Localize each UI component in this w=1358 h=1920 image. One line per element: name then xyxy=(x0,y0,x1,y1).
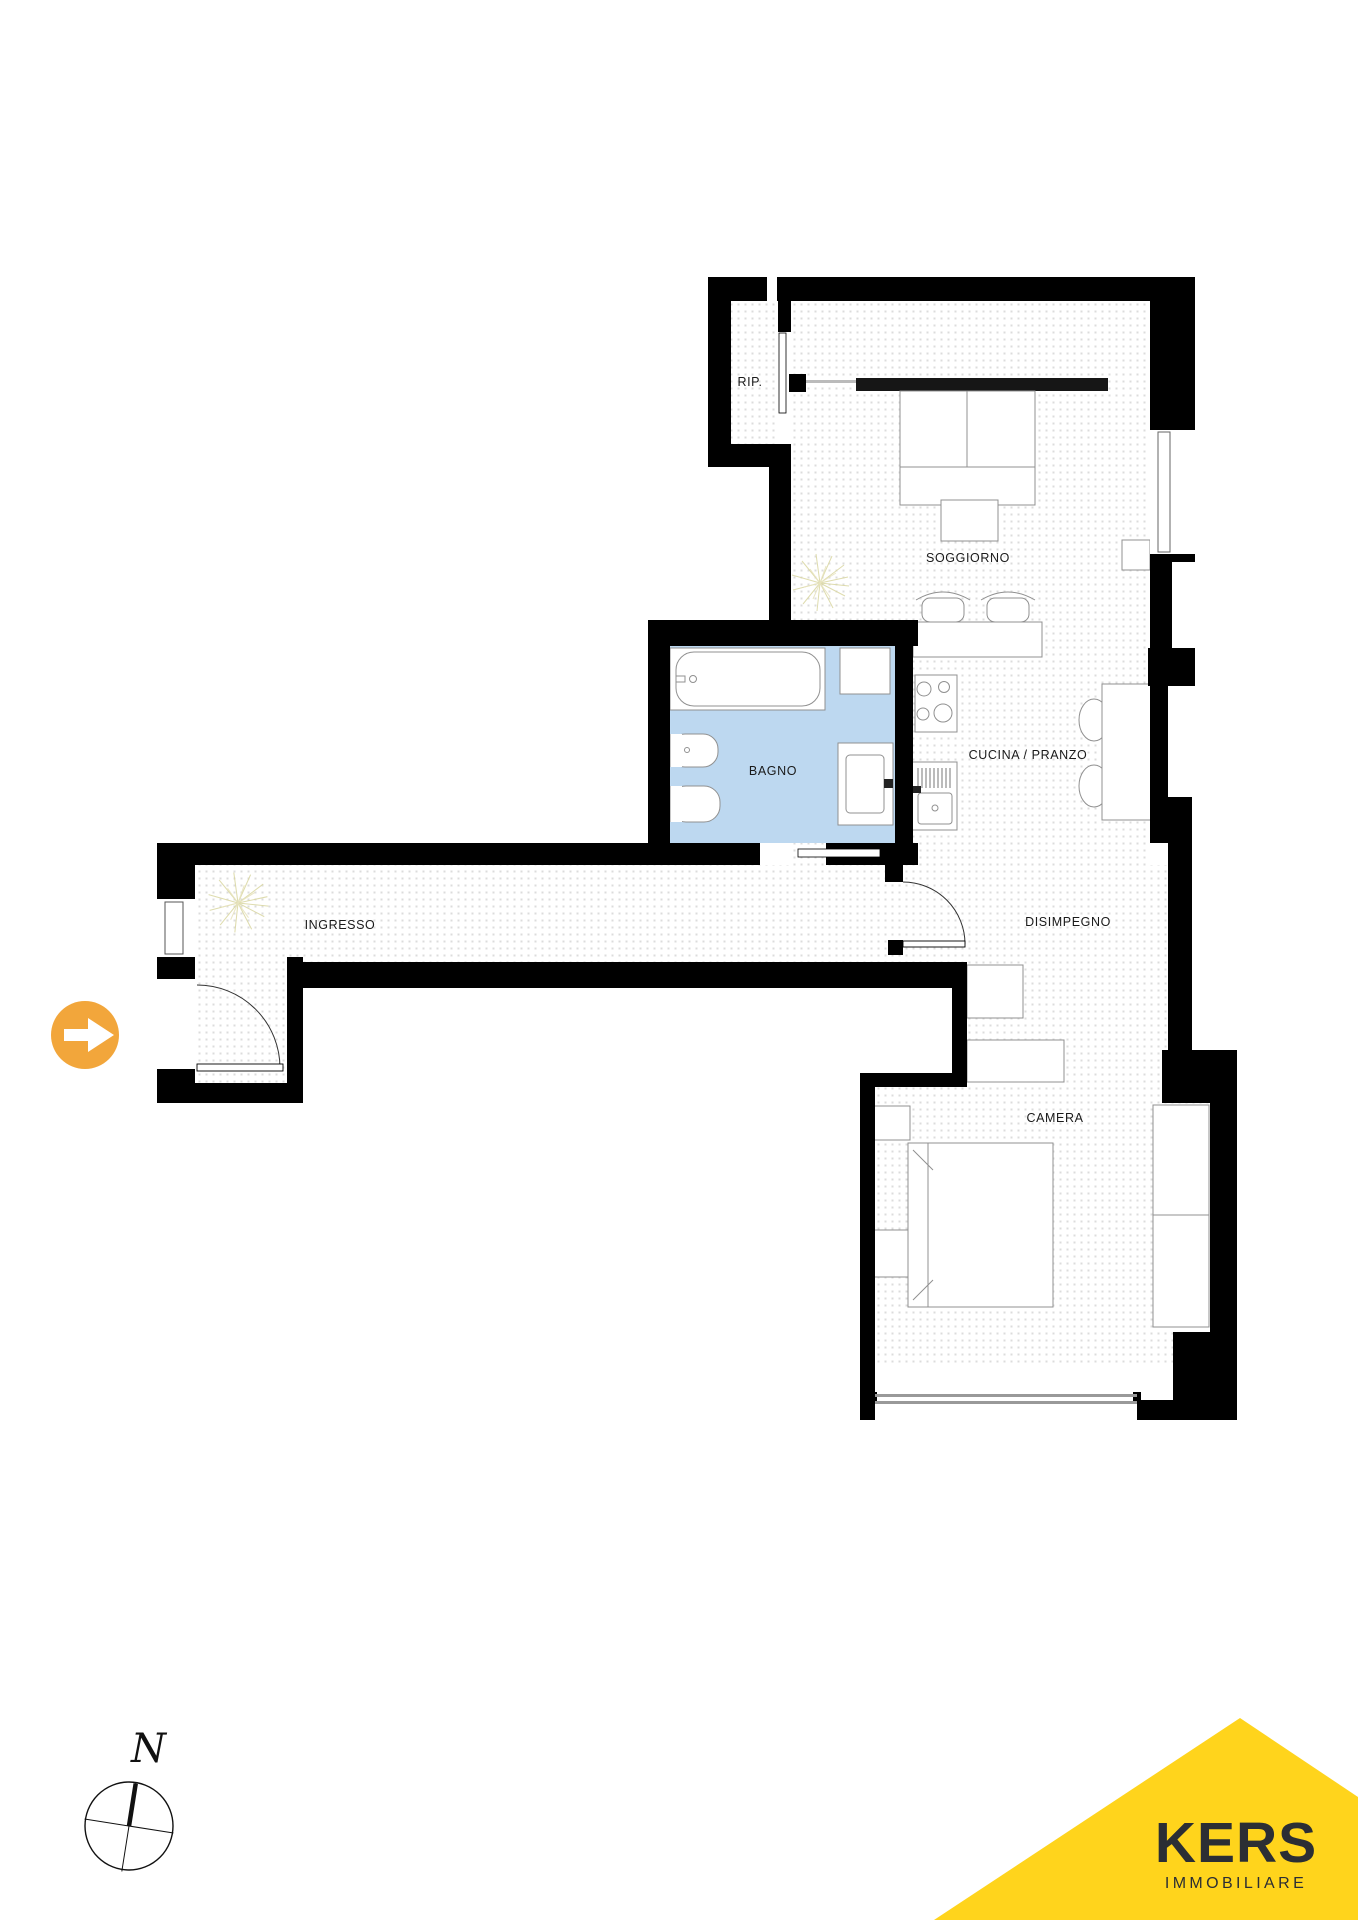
wall-bagno-top xyxy=(648,620,918,646)
wall-camera-top xyxy=(860,1073,967,1087)
window-jamb xyxy=(1150,422,1195,430)
wall-top xyxy=(708,277,1195,301)
logo-name: KERS xyxy=(1155,1811,1317,1875)
sink-faucet xyxy=(913,786,921,793)
wall-doorstop xyxy=(789,374,806,392)
wall-door-post xyxy=(885,865,903,882)
dining-table xyxy=(1102,684,1152,820)
wall-door-jamb xyxy=(888,940,903,955)
floor-plan-page: RIP. SOGGIORNO BAGNO CUCINA / PRANZO ING… xyxy=(0,0,1358,1920)
label-bagno: BAGNO xyxy=(749,764,797,778)
wall-camera-bottom xyxy=(1137,1400,1213,1420)
kitchen-sink xyxy=(912,762,957,830)
compass: N xyxy=(77,1726,180,1878)
sofa-back-console xyxy=(856,378,1108,391)
window-camera xyxy=(875,1394,1137,1404)
wall-entry-left xyxy=(157,843,195,899)
washbasin xyxy=(838,743,893,825)
window-soggiorno xyxy=(1150,430,1195,554)
wall-rip-left xyxy=(708,277,731,467)
wall-right-upper xyxy=(1150,277,1195,430)
bidet xyxy=(670,734,718,767)
closet xyxy=(967,1040,1064,1082)
cooktop xyxy=(915,675,957,732)
kitchen-counter xyxy=(913,622,1042,657)
ingresso-disimpegno-floor xyxy=(195,865,1168,962)
radiator xyxy=(1122,540,1150,570)
wall-entry-left xyxy=(157,957,195,979)
wall-ingresso-bottom xyxy=(287,962,952,988)
wall-bagno-left xyxy=(648,620,670,865)
label-ingresso: INGRESSO xyxy=(305,918,376,932)
wall-bagno-right xyxy=(895,646,913,843)
wall-ingresso-top xyxy=(157,843,650,865)
label-cucina: CUCINA / PRANZO xyxy=(969,748,1088,762)
wall-vestibule-bottom xyxy=(157,1083,303,1103)
bathtub xyxy=(670,648,825,710)
compass-needle-icon xyxy=(77,1776,180,1879)
floor-plan-drawing: RIP. SOGGIORNO BAGNO CUCINA / PRANZO ING… xyxy=(0,0,1358,1920)
label-rip: RIP. xyxy=(737,375,762,389)
label-soggiorno: SOGGIORNO xyxy=(926,551,1010,565)
wall-right-step xyxy=(1150,797,1192,843)
window-ingresso xyxy=(157,899,195,957)
wall-joint xyxy=(767,277,777,301)
wall-soggiorno-left xyxy=(769,444,791,622)
wall-camera-right xyxy=(1210,1103,1237,1340)
vestibule-floor xyxy=(195,865,287,1083)
floors xyxy=(195,301,1210,1367)
sliding-door-bagno xyxy=(798,849,880,857)
coffee-table xyxy=(941,500,998,541)
label-disimpegno: DISIMPEGNO xyxy=(1025,915,1111,929)
shower-box xyxy=(840,648,890,694)
compass-north-label: N xyxy=(130,1726,168,1772)
wardrobe xyxy=(1153,1105,1209,1327)
closet xyxy=(967,965,1023,1018)
wall-right-disimpegno xyxy=(1168,843,1192,1063)
bed xyxy=(908,1143,1053,1307)
wall-right-dining xyxy=(1150,686,1168,797)
sliding-door-rip xyxy=(779,333,786,413)
wall-disimpegno-left xyxy=(952,962,967,1083)
wall-right-corner-block xyxy=(1148,648,1195,686)
toilet xyxy=(670,786,720,822)
wall-camera-left xyxy=(860,1073,875,1420)
nightstand xyxy=(874,1230,910,1277)
entrance-marker xyxy=(51,1001,119,1069)
wall-right-mid xyxy=(1150,556,1172,648)
label-camera: CAMERA xyxy=(1026,1111,1083,1125)
wall-camera-topright xyxy=(1162,1050,1237,1103)
wall-bagno-bottom xyxy=(648,843,760,865)
wall-rip-partition xyxy=(778,301,791,332)
logo-tagline: IMMOBILIARE xyxy=(1165,1875,1307,1892)
nightstand xyxy=(871,1106,910,1140)
brand-logo: KERS IMMOBILIARE xyxy=(934,1718,1358,1920)
rip-floor xyxy=(731,301,778,444)
